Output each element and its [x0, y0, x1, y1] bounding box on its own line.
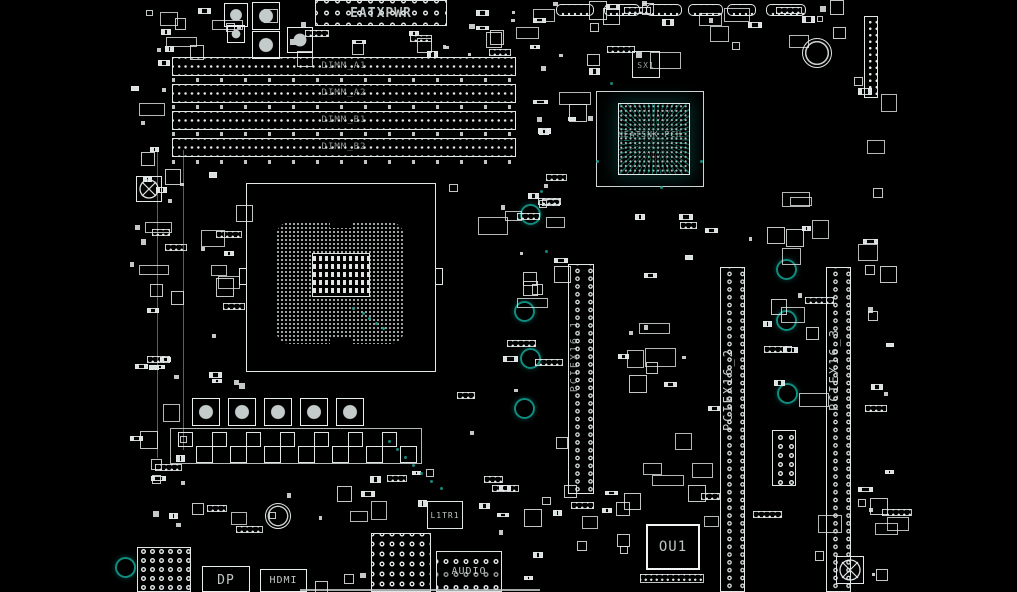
vrm-choke	[336, 398, 364, 426]
smd-component	[602, 508, 612, 513]
smd-component	[789, 35, 810, 47]
via-dot	[660, 186, 663, 189]
smd-component	[820, 6, 826, 12]
smd-component	[512, 11, 515, 14]
smd-component	[209, 172, 217, 178]
smd-component	[858, 88, 872, 95]
smd-component	[216, 278, 235, 297]
smd-component	[533, 100, 548, 104]
smd-component	[524, 509, 542, 527]
smd-component	[724, 8, 750, 22]
vrm-choke	[192, 398, 220, 426]
smd-component	[617, 534, 631, 548]
smd-component	[141, 152, 155, 166]
smd-component	[176, 455, 185, 461]
vrm-mosfet	[298, 446, 315, 463]
smd-component	[216, 231, 241, 238]
smd-component	[151, 459, 162, 470]
smd-component	[546, 174, 567, 181]
smd-component	[486, 32, 502, 48]
smd-component	[624, 7, 651, 14]
smd-component	[152, 229, 171, 236]
smd-component	[802, 16, 815, 22]
smd-component	[427, 51, 438, 58]
boardview-canvas: EATXPWR DIMM_A1 DIMM_A2 DIMM_B1 DIMM_B2 …	[0, 0, 1017, 592]
vrm-mosfet	[264, 446, 281, 463]
smd-component	[554, 266, 571, 283]
smd-component	[539, 129, 549, 135]
smd-component	[854, 77, 863, 86]
smd-component	[157, 48, 161, 52]
smd-component	[190, 45, 205, 60]
smd-component	[644, 273, 657, 278]
smd-component	[556, 437, 568, 449]
via-dot	[440, 487, 443, 490]
smd-component	[818, 515, 842, 533]
via-dot	[430, 480, 433, 483]
smd-component	[704, 516, 719, 527]
smd-component	[645, 348, 676, 366]
via-dot	[382, 327, 385, 330]
smd-component	[530, 45, 540, 49]
vrm-mosfet	[332, 446, 349, 463]
smd-component	[886, 343, 894, 347]
smd-component	[297, 51, 313, 67]
smd-component	[749, 237, 752, 240]
smd-component	[685, 255, 693, 260]
smd-component	[812, 220, 829, 239]
smd-component	[692, 463, 713, 478]
vrm-mosfet	[366, 446, 383, 463]
smd-component	[582, 516, 598, 529]
smd-component	[520, 252, 524, 256]
smd-component	[163, 404, 180, 422]
vrm-mosfet	[196, 446, 213, 463]
smd-component	[371, 501, 386, 520]
smd-component	[767, 227, 785, 245]
smd-component	[858, 499, 866, 507]
smd-component	[799, 393, 830, 407]
via-dot	[540, 190, 543, 193]
smd-component	[538, 198, 561, 205]
via-dot	[388, 440, 391, 443]
smd-component	[130, 262, 135, 267]
smd-component	[542, 497, 550, 505]
smd-component	[165, 244, 187, 251]
smd-component	[269, 512, 276, 519]
smd-component	[212, 334, 216, 338]
smd-component	[514, 389, 517, 392]
smd-component	[865, 265, 875, 275]
smd-component	[858, 487, 872, 492]
smd-component	[158, 60, 171, 66]
smd-component	[131, 86, 140, 90]
smd-component	[537, 117, 543, 123]
vrm-choke	[287, 27, 313, 53]
smd-component	[153, 511, 159, 517]
smd-component	[790, 197, 812, 206]
smd-component	[169, 513, 178, 519]
vrm-mosfet	[348, 432, 363, 447]
smd-component	[564, 485, 577, 498]
smd-component	[180, 183, 184, 187]
smd-component	[223, 303, 246, 310]
smd-component	[489, 49, 511, 56]
smd-component	[352, 43, 364, 55]
smd-component	[174, 375, 179, 380]
crystal-oscillator	[836, 556, 864, 584]
vrm-mosfet	[280, 432, 295, 447]
via-dot	[404, 456, 407, 459]
smd-component	[360, 573, 365, 578]
smd-component	[629, 331, 633, 335]
smd-component	[871, 384, 883, 390]
smd-component	[781, 307, 804, 323]
smd-component	[544, 184, 548, 188]
smd-component	[709, 18, 713, 22]
smd-component	[141, 239, 147, 245]
smd-component	[873, 188, 883, 198]
smd-component	[176, 523, 181, 528]
vrm-mosfet	[314, 432, 329, 447]
vrm-choke	[252, 31, 280, 59]
smd-component	[652, 475, 683, 486]
smd-component	[239, 383, 245, 389]
smd-component	[449, 184, 458, 193]
vrm-choke	[227, 25, 245, 43]
smd-component	[165, 169, 181, 185]
smd-component	[616, 502, 630, 516]
via-dot	[396, 448, 399, 451]
smd-component	[664, 382, 677, 387]
smd-component	[147, 308, 159, 313]
smd-component	[710, 26, 729, 41]
smd-component	[418, 500, 427, 507]
smd-component	[387, 475, 406, 482]
smd-component	[675, 433, 693, 450]
smd-component	[207, 505, 227, 512]
smd-component	[805, 297, 834, 304]
smd-component	[236, 205, 253, 222]
smd-component	[209, 372, 222, 378]
smd-component	[212, 379, 222, 383]
smd-component	[224, 251, 234, 256]
smd-component	[181, 481, 185, 485]
smd-component	[559, 92, 591, 106]
smd-component	[139, 265, 170, 275]
smd-component	[887, 517, 909, 532]
smd-component	[870, 498, 887, 515]
smd-component	[662, 19, 674, 26]
smd-component	[705, 228, 718, 233]
smd-component	[445, 46, 449, 50]
smd-component	[160, 12, 178, 25]
smd-component	[642, 1, 648, 7]
smd-component	[287, 493, 291, 497]
smd-component	[524, 576, 533, 581]
smd-component	[680, 222, 697, 229]
smd-component	[319, 516, 322, 519]
smd-component	[833, 27, 846, 40]
smd-component	[523, 272, 537, 286]
smd-component	[708, 406, 721, 410]
smd-component	[149, 365, 159, 370]
smd-component	[620, 546, 628, 554]
via-dot	[412, 464, 415, 467]
smd-component	[587, 54, 599, 66]
vrm-mosfet	[212, 432, 227, 447]
smd-component	[830, 0, 845, 15]
smd-component	[511, 19, 514, 22]
smd-component	[150, 284, 163, 297]
smd-component	[868, 311, 877, 320]
smd-component	[541, 66, 546, 71]
smd-component	[732, 42, 740, 50]
smd-component	[192, 503, 204, 515]
smd-component	[211, 265, 227, 275]
smd-component	[484, 476, 504, 483]
smd-component	[130, 436, 143, 441]
via-dot	[352, 307, 355, 310]
smd-component	[748, 22, 763, 28]
smd-component	[147, 356, 170, 363]
via-dot	[420, 472, 423, 475]
smd-component	[627, 350, 643, 369]
components-layer	[0, 0, 1017, 592]
smd-component	[535, 359, 563, 366]
smd-component	[478, 217, 508, 235]
smd-component	[344, 574, 354, 584]
vrm-mosfet	[246, 432, 261, 447]
smd-component	[553, 2, 557, 6]
smd-component	[884, 392, 888, 396]
smd-component	[650, 52, 681, 69]
smd-component	[171, 291, 185, 305]
smd-component	[516, 27, 539, 38]
vrm-choke	[228, 398, 256, 426]
smd-component	[569, 104, 587, 122]
smd-component	[161, 29, 171, 36]
vrm-mosfet	[178, 432, 193, 447]
smd-component	[479, 503, 491, 508]
smd-component	[571, 502, 594, 509]
via-dot	[610, 82, 613, 85]
smd-component	[236, 526, 263, 533]
smd-component	[753, 511, 782, 518]
smd-component	[863, 239, 877, 245]
smd-component	[135, 364, 148, 369]
vrm-choke	[264, 398, 292, 426]
smd-component	[503, 356, 518, 361]
smd-component	[497, 513, 509, 518]
smd-component	[589, 1, 608, 20]
smd-component	[533, 18, 546, 23]
smd-component	[151, 476, 166, 481]
smd-component	[301, 22, 306, 27]
smd-component	[352, 40, 366, 44]
smd-component	[577, 541, 587, 551]
smd-component	[636, 52, 642, 58]
smd-component	[546, 217, 565, 228]
smd-component	[476, 10, 489, 16]
vrm-choke	[224, 3, 248, 27]
smd-component	[858, 244, 878, 261]
smd-component	[885, 470, 894, 474]
smd-component	[468, 53, 471, 56]
smd-component	[629, 375, 648, 394]
smd-component	[589, 68, 600, 75]
smd-component	[361, 491, 376, 498]
smd-component	[533, 552, 543, 558]
smd-component	[872, 573, 875, 576]
via-dot	[700, 160, 703, 163]
smd-component	[469, 24, 475, 30]
smd-component	[315, 581, 327, 592]
smd-component	[198, 8, 211, 14]
smd-component	[774, 380, 786, 386]
smd-component	[763, 321, 772, 328]
smd-component	[559, 54, 562, 57]
smd-component	[168, 199, 172, 203]
smd-component	[817, 16, 823, 22]
smd-component	[815, 551, 825, 561]
via-dot	[375, 322, 378, 325]
smd-component	[470, 431, 473, 434]
smd-component	[876, 569, 888, 581]
smd-component	[410, 35, 432, 42]
smd-component	[517, 298, 547, 308]
smd-component	[635, 214, 645, 219]
smd-component	[806, 327, 819, 340]
smd-component	[643, 463, 662, 475]
smd-component	[880, 266, 897, 283]
smd-component	[234, 380, 239, 385]
smd-component	[476, 26, 490, 30]
smd-component	[139, 103, 165, 116]
smd-component	[201, 247, 205, 251]
smd-component	[786, 229, 804, 247]
smd-component	[457, 392, 475, 399]
vrm-mosfet	[400, 446, 417, 463]
smd-component	[370, 476, 380, 482]
smd-component	[507, 340, 536, 347]
vrm-choke	[300, 398, 328, 426]
smd-component	[701, 493, 720, 500]
smd-component	[605, 491, 618, 495]
smd-component	[776, 7, 802, 14]
smd-component	[337, 486, 352, 501]
smd-component	[426, 469, 433, 476]
smd-component	[588, 116, 593, 121]
smd-component	[607, 46, 635, 53]
smd-component	[679, 214, 692, 221]
smd-component	[501, 205, 505, 209]
smd-component	[350, 511, 368, 522]
vrm-mosfet	[230, 446, 247, 463]
smd-component	[553, 510, 562, 516]
smd-component	[867, 140, 885, 154]
smd-component	[881, 94, 897, 113]
smd-component	[865, 405, 887, 412]
smd-component	[554, 258, 568, 263]
smd-component	[499, 530, 503, 534]
smd-component	[146, 10, 153, 17]
via-dot	[362, 312, 365, 315]
smd-component	[644, 325, 648, 329]
smd-component	[135, 225, 140, 230]
smd-component	[590, 23, 599, 32]
smd-component	[231, 512, 247, 526]
smd-component	[798, 293, 803, 298]
via-dot	[368, 317, 371, 320]
smd-component	[141, 121, 145, 125]
vrm-choke	[252, 2, 280, 30]
smd-component	[782, 248, 801, 265]
smd-component	[162, 88, 166, 92]
smd-component	[764, 346, 792, 353]
crystal-oscillator	[136, 176, 162, 202]
via-dot	[596, 160, 599, 163]
smd-component	[499, 485, 511, 492]
smd-component	[606, 4, 621, 11]
via-dot	[545, 250, 548, 253]
smd-component	[682, 356, 686, 360]
